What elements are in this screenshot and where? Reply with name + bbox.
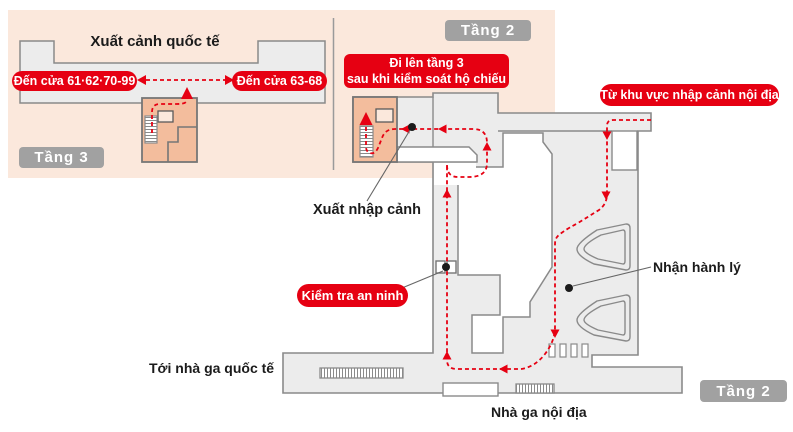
instruction-line2: sau khi kiểm soát hộ chiếu xyxy=(347,71,506,87)
immigration-label: Xuất nhập cảnh xyxy=(313,202,421,218)
security-point xyxy=(442,263,450,271)
domestic-entrance-door xyxy=(443,383,498,396)
from-domestic-badge: Từ khu vực nhập cảnh nội địa xyxy=(600,84,779,106)
immigration-point xyxy=(408,123,416,131)
gate-right-badge: Đến cửa 63-68 xyxy=(232,71,327,91)
domestic-terminal-label: Nhà ga nội địa xyxy=(491,404,587,420)
elevator-icon xyxy=(158,111,173,122)
baggage-label: Nhận hành lý xyxy=(653,259,741,275)
to-international-label: Tới nhà ga quốc tế xyxy=(149,360,274,376)
gate-left-badge: Đến cửa 61·62·70-99 xyxy=(12,71,137,91)
airport-floor-map: Xuất cảnh quốc tế Đến cửa 61·62·70-99 Đế… xyxy=(0,0,793,432)
go-up-instruction-badge: Đi lên tầng 3 sau khi kiểm soát hộ chiếu xyxy=(344,54,509,88)
moving-walkway-icon xyxy=(516,384,554,393)
escalator-icon xyxy=(145,116,157,143)
instruction-line1: Đi lên tầng 3 xyxy=(389,55,463,71)
floor3-stair-room xyxy=(142,98,197,162)
floor2-inset-badge: Tầng 2 xyxy=(445,20,531,41)
floor3-title: Xuất cảnh quốc tế xyxy=(90,33,220,50)
moving-walkway-icon xyxy=(320,368,403,378)
floor2-main-badge: Tầng 2 xyxy=(700,380,787,402)
security-badge: Kiểm tra an ninh xyxy=(297,284,408,307)
elevator-icon xyxy=(376,109,393,122)
top-notch-cutout xyxy=(612,131,637,170)
passport-counter xyxy=(397,147,477,162)
baggage-point xyxy=(565,284,573,292)
floor2-stair-room xyxy=(353,97,397,162)
floor3-badge: Tầng 3 xyxy=(19,147,104,168)
